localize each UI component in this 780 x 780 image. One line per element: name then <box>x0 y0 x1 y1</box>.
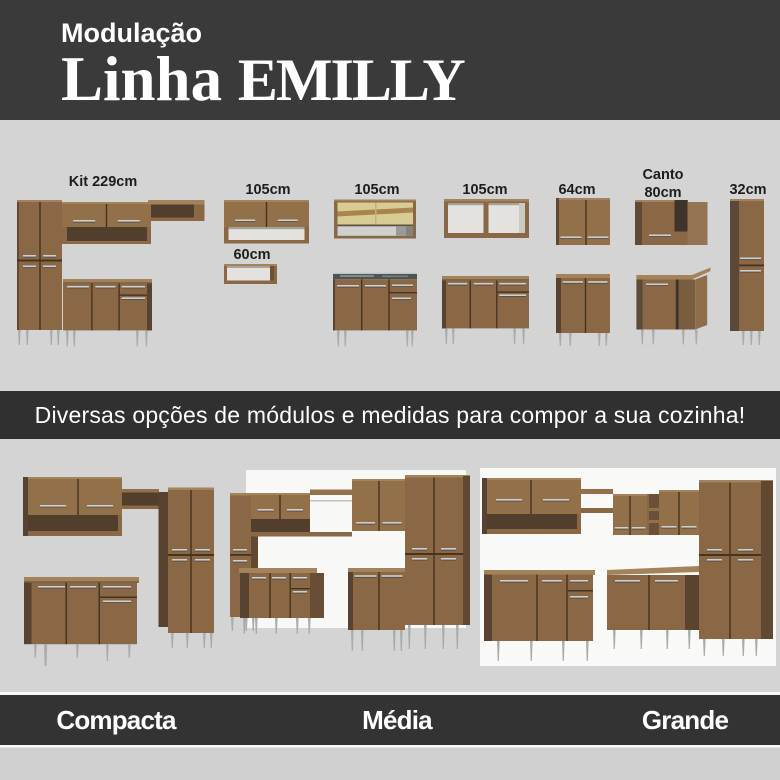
svg-text:Canto: Canto <box>642 167 683 183</box>
svg-text:64cm: 64cm <box>558 182 595 198</box>
svg-text:105cm: 105cm <box>462 182 507 198</box>
svg-text:32cm: 32cm <box>729 182 766 198</box>
svg-text:Linha EMILLY: Linha EMILLY <box>61 44 465 114</box>
svg-text:Grande: Grande <box>642 705 729 735</box>
svg-text:Compacta: Compacta <box>56 705 177 735</box>
svg-text:60cm: 60cm <box>233 247 270 263</box>
svg-text:105cm: 105cm <box>354 182 399 198</box>
svg-text:Kit 229cm: Kit 229cm <box>69 174 138 190</box>
svg-text:Média: Média <box>362 705 433 735</box>
svg-text:80cm: 80cm <box>644 185 681 201</box>
svg-text:Diversas opções de módulos e m: Diversas opções de módulos e medidas par… <box>35 402 746 428</box>
svg-text:105cm: 105cm <box>245 182 290 198</box>
